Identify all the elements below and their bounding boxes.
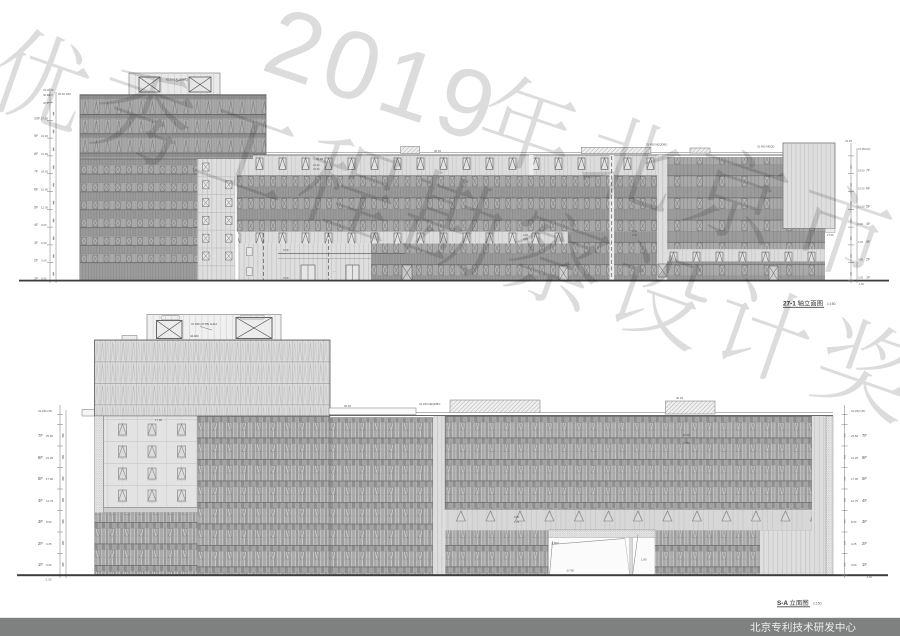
svg-text:0.00: 0.00 bbox=[858, 276, 864, 280]
svg-text:21.00: 21.00 bbox=[41, 152, 48, 156]
svg-text:7F: 7F bbox=[862, 433, 867, 438]
svg-text:27.60: 27.60 bbox=[827, 233, 834, 237]
svg-text:6.00: 6.00 bbox=[858, 240, 864, 244]
svg-text:25.50: 25.50 bbox=[46, 434, 53, 438]
svg-text:39.60 WM: 39.60 WM bbox=[58, 92, 71, 96]
svg-text:3.30: 3.30 bbox=[632, 233, 638, 237]
svg-text:22.20: 22.20 bbox=[313, 163, 320, 167]
svg-text:0.00: 0.00 bbox=[851, 563, 857, 567]
svg-text:1.76: 1.76 bbox=[514, 520, 520, 524]
svg-text:3.00: 3.00 bbox=[41, 259, 47, 263]
svg-text:-1.50: -1.50 bbox=[866, 575, 872, 579]
svg-text:8F: 8F bbox=[34, 152, 39, 156]
svg-text:9F: 9F bbox=[34, 134, 39, 138]
svg-text:12.75: 12.75 bbox=[46, 499, 53, 503]
svg-text:6F: 6F bbox=[866, 187, 871, 191]
svg-text:S-A: S-A bbox=[777, 600, 788, 607]
svg-text:23.30: 23.30 bbox=[313, 167, 320, 171]
svg-text:17.00: 17.00 bbox=[46, 477, 53, 481]
svg-text:2F: 2F bbox=[866, 258, 871, 262]
svg-text:0.00: 0.00 bbox=[46, 563, 52, 567]
svg-text:5F: 5F bbox=[34, 205, 39, 209]
svg-text:12.00: 12.00 bbox=[41, 205, 48, 209]
svg-text:10F: 10F bbox=[34, 116, 41, 120]
svg-text:9.80: 9.80 bbox=[514, 515, 520, 519]
svg-text:- -: - - bbox=[333, 269, 336, 273]
svg-text:4F: 4F bbox=[38, 498, 43, 503]
svg-text:6F: 6F bbox=[34, 188, 39, 192]
svg-text:17.90: 17.90 bbox=[155, 418, 162, 422]
svg-text:1F: 1F bbox=[862, 562, 867, 567]
svg-text:7F: 7F bbox=[866, 169, 871, 173]
svg-text:4F: 4F bbox=[34, 223, 39, 227]
svg-text:3.760: 3.760 bbox=[683, 441, 690, 445]
svg-text:6F: 6F bbox=[38, 455, 43, 460]
svg-text:12.75: 12.75 bbox=[851, 499, 858, 503]
svg-text:31.450 (JF): 31.450 (JF) bbox=[38, 409, 52, 413]
svg-text:26.80: 26.80 bbox=[683, 433, 690, 437]
svg-text:21.25: 21.25 bbox=[851, 456, 858, 460]
svg-text:9.00: 9.00 bbox=[41, 223, 47, 227]
svg-text:31.450 NEQDBG: 31.450 NEQDBG bbox=[419, 402, 440, 406]
svg-text:1.80: 1.80 bbox=[641, 558, 647, 562]
svg-text:17.00: 17.00 bbox=[851, 477, 858, 481]
svg-text:7F: 7F bbox=[38, 433, 43, 438]
svg-text:1F: 1F bbox=[38, 562, 43, 567]
svg-text:-1.50: -1.50 bbox=[858, 282, 864, 286]
svg-text:15.00: 15.00 bbox=[41, 188, 48, 192]
svg-text:44.400: 44.400 bbox=[190, 334, 199, 338]
svg-text:2.20: 2.20 bbox=[632, 229, 638, 233]
svg-text:1:150: 1:150 bbox=[813, 602, 822, 606]
svg-text:31.450(JF): 31.450(JF) bbox=[858, 147, 871, 151]
svg-text:7F: 7F bbox=[34, 170, 39, 174]
svg-text:4.25: 4.25 bbox=[851, 542, 857, 546]
svg-text:21.25: 21.25 bbox=[46, 456, 53, 460]
svg-text:-0.750: -0.750 bbox=[566, 569, 574, 573]
svg-text:5F: 5F bbox=[866, 204, 871, 208]
svg-text:5F: 5F bbox=[862, 476, 867, 481]
svg-text:6F: 6F bbox=[862, 455, 867, 460]
svg-text:31.450 NEQD: 31.450 NEQD bbox=[757, 145, 774, 149]
svg-text:4.25: 4.25 bbox=[46, 542, 52, 546]
svg-text:18.00: 18.00 bbox=[858, 169, 865, 173]
svg-text:1:150: 1:150 bbox=[827, 302, 836, 306]
svg-text:2019: 2019 bbox=[252, 0, 514, 165]
svg-text:5.00: 5.00 bbox=[283, 248, 289, 252]
svg-text:31.45: 31.45 bbox=[845, 139, 852, 143]
svg-text:15.00: 15.00 bbox=[858, 187, 865, 191]
svg-text:8.50: 8.50 bbox=[851, 520, 857, 524]
svg-text:3F: 3F bbox=[38, 519, 43, 524]
svg-text:6.00: 6.00 bbox=[41, 241, 47, 245]
svg-text:3F: 3F bbox=[34, 241, 39, 245]
svg-text:4F: 4F bbox=[862, 498, 867, 503]
svg-text:1F: 1F bbox=[866, 276, 871, 280]
svg-text:30.45: 30.45 bbox=[676, 396, 683, 400]
svg-text:2F: 2F bbox=[34, 259, 39, 263]
svg-text:3F: 3F bbox=[862, 519, 867, 524]
svg-text:30.45: 30.45 bbox=[344, 404, 351, 408]
svg-text:18.00: 18.00 bbox=[41, 170, 48, 174]
svg-text:31.450 (JF): 31.450 (JF) bbox=[851, 409, 865, 413]
svg-text:8.50: 8.50 bbox=[46, 520, 52, 524]
svg-text:25.50: 25.50 bbox=[851, 434, 858, 438]
svg-text:-1.50: -1.50 bbox=[45, 578, 52, 582]
svg-text:0.00: 0.00 bbox=[283, 276, 289, 280]
svg-text:2F: 2F bbox=[38, 541, 43, 546]
svg-text:2F: 2F bbox=[862, 541, 867, 546]
svg-text:4.600: 4.600 bbox=[552, 541, 559, 545]
svg-text:5F: 5F bbox=[38, 476, 43, 481]
svg-text:24.00: 24.00 bbox=[41, 134, 48, 138]
svg-text:47.450 (37.85) GJGJ: 47.450 (37.85) GJGJ bbox=[191, 322, 218, 326]
svg-text:4F: 4F bbox=[866, 222, 871, 226]
